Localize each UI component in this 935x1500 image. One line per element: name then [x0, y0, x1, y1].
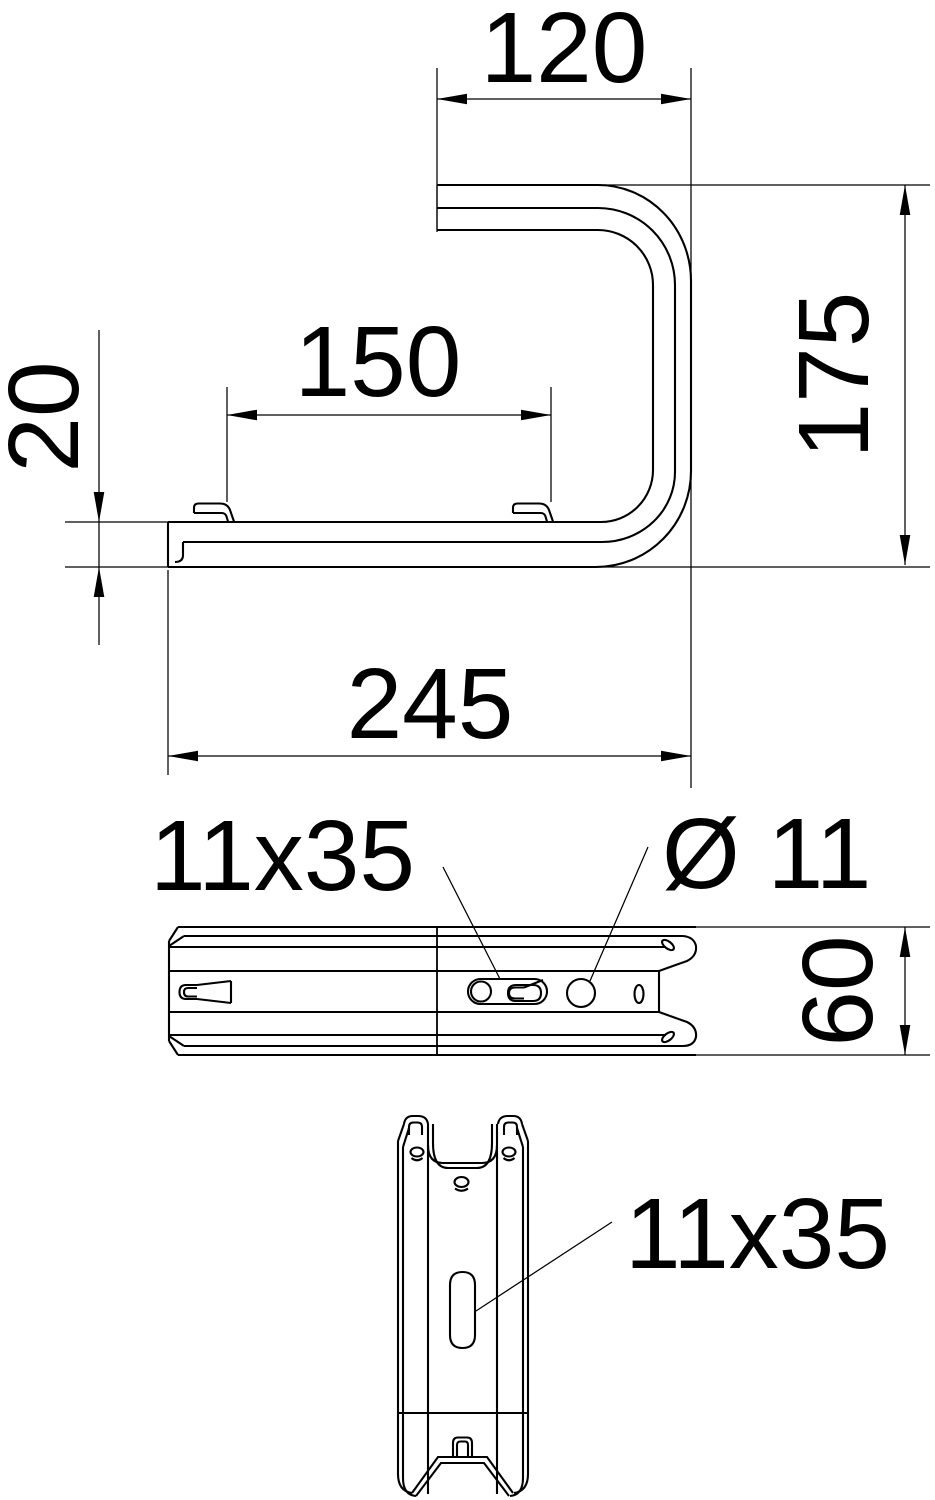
bend-top-inner [598, 230, 653, 285]
front-outer-right [514, 1141, 528, 1493]
arrowhead [900, 1025, 911, 1055]
bend-bottom-inner [601, 470, 653, 522]
slot-11x35-plan [468, 979, 547, 1004]
dim-label-245: 245 [347, 648, 514, 760]
dim-label-175: 175 [778, 292, 890, 459]
arrowhead [900, 535, 911, 565]
front-hole-center [455, 1177, 469, 1191]
arrowhead [168, 751, 198, 762]
arrowhead [661, 94, 691, 105]
flange-hole-edge-bottom [660, 1030, 675, 1044]
front-hole-left [411, 1148, 424, 1161]
flange-hole-edge-top [660, 938, 675, 952]
stamped-tongue-plan [180, 981, 232, 1003]
leader-slot-plan [443, 867, 500, 979]
technical-drawing: 120 175 150 20 245 11x35 Ø 11 60 11x35 [0, 0, 935, 1500]
label-hole-plan: Ø 11 [662, 798, 871, 910]
front-inner-right [510, 1147, 523, 1496]
dim-label-60: 60 [782, 935, 894, 1046]
dim-label-150: 150 [295, 306, 462, 418]
dim-label-120: 120 [481, 0, 648, 104]
arrowhead [900, 927, 911, 957]
front-hole-right [503, 1148, 516, 1161]
rail-right-end [659, 936, 696, 1046]
arrowhead [94, 567, 105, 597]
drawing-canvas: 120 175 150 20 245 11x35 Ø 11 60 11x35 [0, 0, 935, 1500]
dim-label-20: 20 [0, 361, 100, 472]
label-slot-plan: 11x35 [150, 800, 415, 912]
front-shoulder-left [398, 1124, 409, 1147]
tray-clip-right [513, 504, 553, 522]
front-outer-left [398, 1141, 412, 1493]
slot-11x35-front [450, 1272, 475, 1348]
bracket-front-view [398, 1116, 528, 1496]
hole-on-bend [635, 985, 644, 1003]
arrowhead [437, 94, 467, 105]
arrowhead [521, 410, 551, 421]
label-slot-front: 11x35 [625, 1178, 890, 1290]
tray-clip-left [194, 504, 234, 522]
arrowhead [661, 751, 691, 762]
shelf-step [175, 542, 183, 562]
bend-top-outer [598, 185, 691, 281]
front-tongue-tab [453, 1438, 472, 1458]
front-bend-dip [428, 1124, 497, 1168]
arrowhead [94, 492, 105, 522]
front-shoulder-right [517, 1124, 528, 1147]
front-inner-left [403, 1147, 416, 1496]
arrowhead [227, 410, 257, 421]
hole-11-plan [567, 979, 595, 1007]
bend-bottom-outer [596, 471, 691, 567]
leader-hole-plan [590, 847, 648, 981]
arrowhead [900, 185, 911, 215]
